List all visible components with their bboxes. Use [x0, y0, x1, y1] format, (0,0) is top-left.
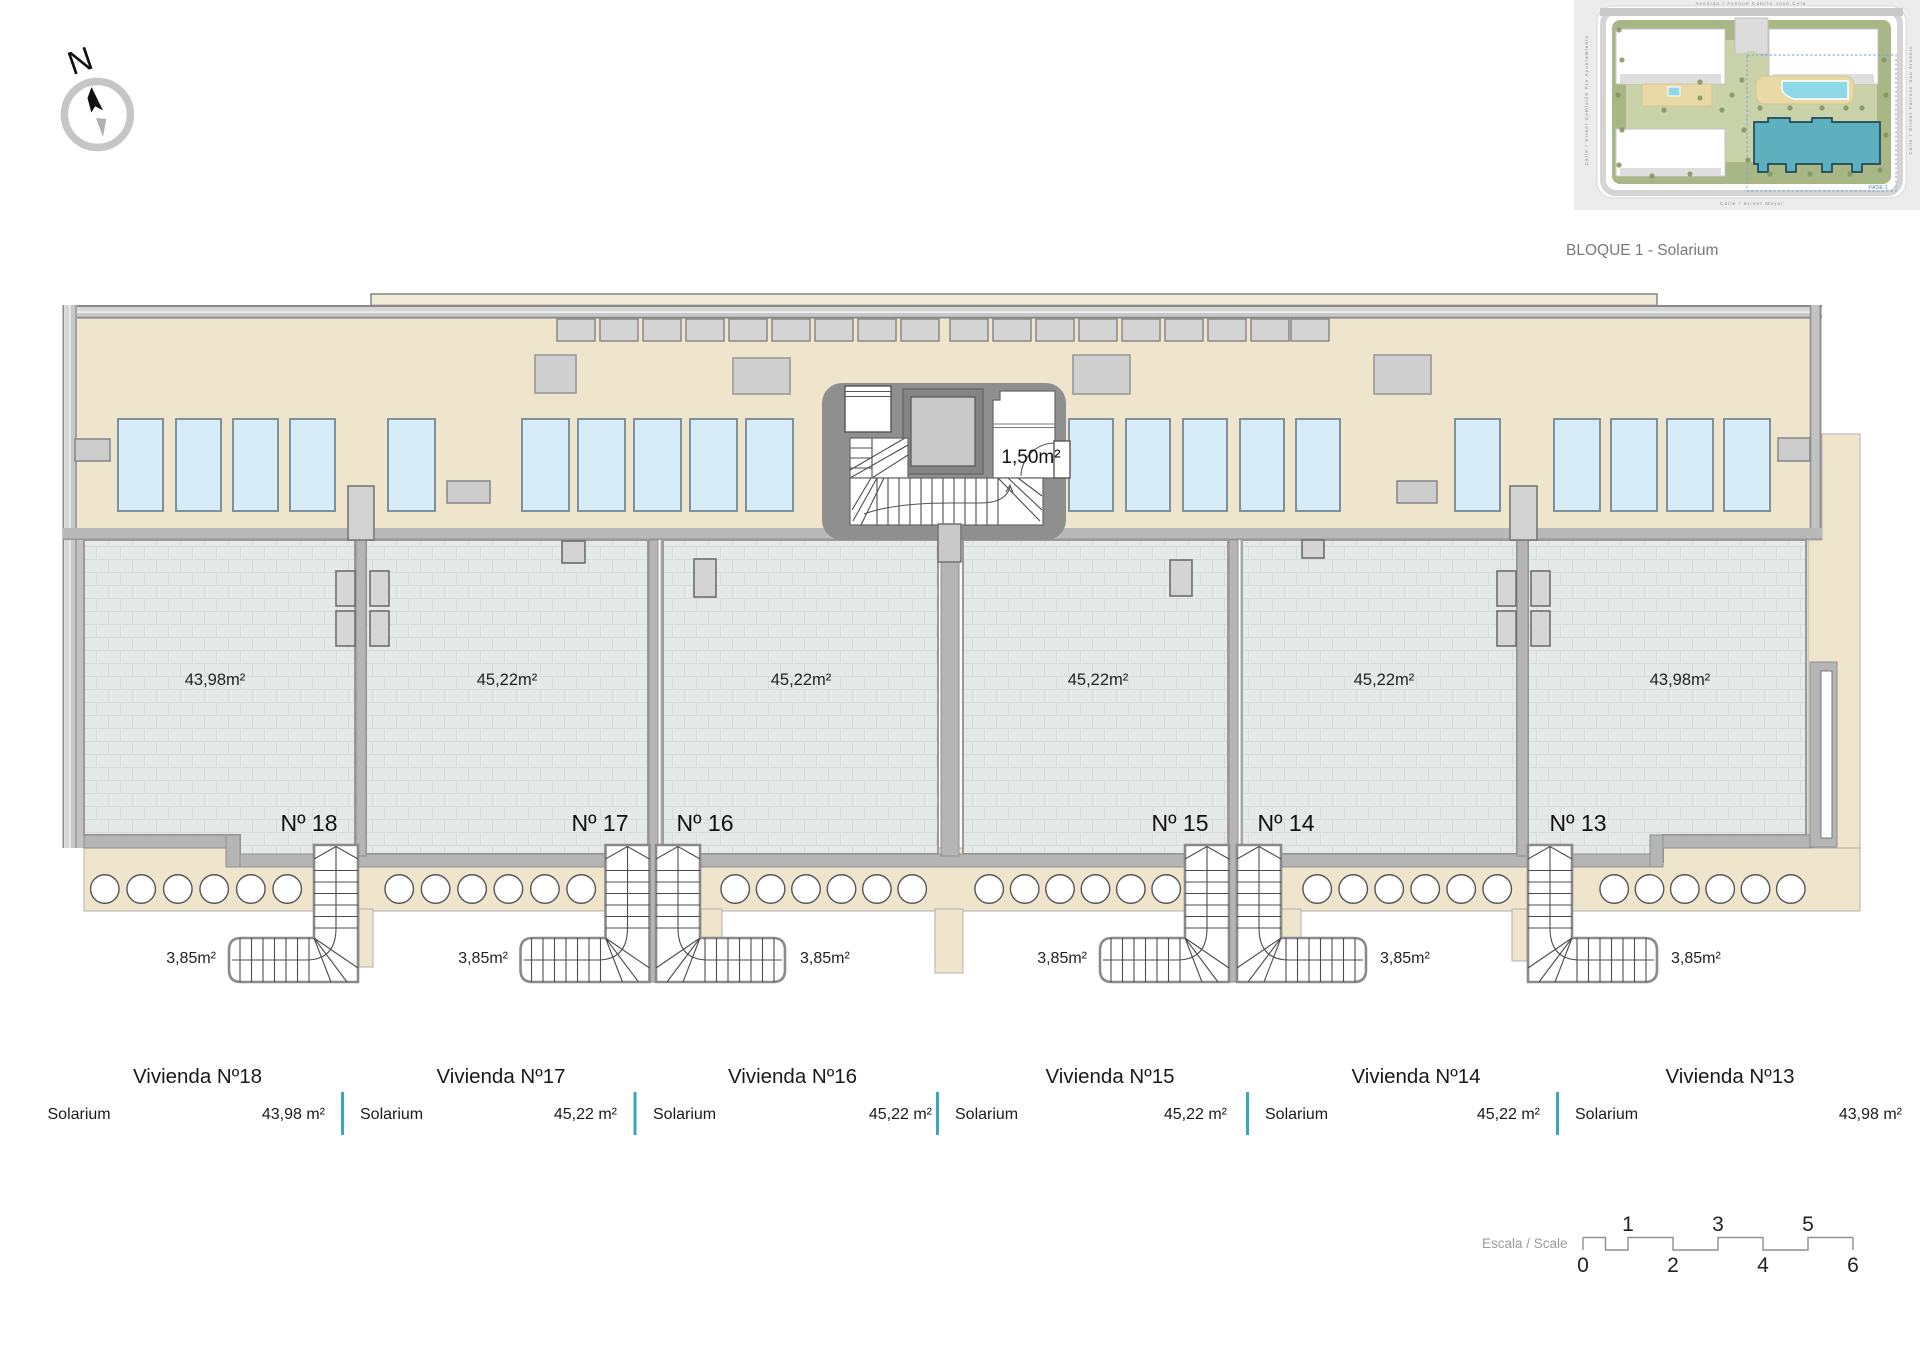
svg-text:Calle / Street Comisión Pro Ay: Calle / Street Comisión Pro Ayuntamiento [1584, 35, 1589, 166]
svg-text:3,85m²: 3,85m² [1671, 950, 1721, 967]
svg-text:3,85m²: 3,85m² [458, 950, 508, 967]
svg-text:45,22m²: 45,22m² [771, 671, 832, 689]
svg-text:3,85m²: 3,85m² [166, 950, 216, 967]
svg-text:Calle / Street Mayor: Calle / Street Mayor [1720, 201, 1784, 206]
svg-text:Nº 18: Nº 18 [281, 810, 338, 836]
svg-text:45,22 m²: 45,22 m² [1164, 1106, 1228, 1123]
svg-text:45,22 m²: 45,22 m² [554, 1106, 618, 1123]
svg-text:Vivienda Nº18: Vivienda Nº18 [133, 1065, 262, 1088]
svg-text:Vivienda Nº15: Vivienda Nº15 [1045, 1065, 1174, 1088]
svg-text:Vivienda Nº14: Vivienda Nº14 [1351, 1065, 1480, 1088]
svg-text:43,98 m²: 43,98 m² [1839, 1106, 1903, 1123]
svg-text:Avenida / Avenue Camilo José C: Avenida / Avenue Camilo José Cela [1696, 1, 1807, 6]
svg-text:Solarium: Solarium [360, 1106, 423, 1123]
svg-text:45,22m²: 45,22m² [477, 671, 538, 689]
svg-text:3,85m²: 3,85m² [1380, 950, 1430, 967]
svg-text:BLOQUE 1 - Solarium: BLOQUE 1 - Solarium [1566, 242, 1718, 259]
svg-text:1,50m²: 1,50m² [1001, 447, 1060, 468]
svg-text:Escala / Scale: Escala / Scale [1482, 1236, 1568, 1251]
svg-text:4: 4 [1757, 1254, 1769, 1277]
svg-text:43,98m²: 43,98m² [1650, 671, 1711, 689]
svg-text:2: 2 [1667, 1254, 1679, 1277]
svg-text:Nº 14: Nº 14 [1258, 810, 1315, 836]
svg-text:45,22 m²: 45,22 m² [869, 1106, 933, 1123]
svg-text:Calle / Street Párroco San Ars: Calle / Street Párroco San Arsenio [1908, 45, 1913, 154]
svg-text:Solarium: Solarium [48, 1106, 111, 1123]
svg-text:5: 5 [1802, 1213, 1814, 1236]
svg-text:Vivienda Nº16: Vivienda Nº16 [728, 1065, 857, 1088]
svg-text:Vivienda Nº13: Vivienda Nº13 [1665, 1065, 1794, 1088]
svg-text:Nº 17: Nº 17 [572, 810, 629, 836]
svg-text:3,85m²: 3,85m² [800, 950, 850, 967]
svg-text:Solarium: Solarium [653, 1106, 716, 1123]
svg-text:45,22 m²: 45,22 m² [1477, 1106, 1541, 1123]
svg-text:43,98m²: 43,98m² [185, 671, 246, 689]
svg-text:43,98 m²: 43,98 m² [262, 1106, 326, 1123]
svg-text:0: 0 [1577, 1254, 1589, 1277]
svg-text:45,22m²: 45,22m² [1354, 671, 1415, 689]
svg-text:Solarium: Solarium [955, 1106, 1018, 1123]
svg-text:Nº 13: Nº 13 [1550, 810, 1607, 836]
svg-text:3: 3 [1712, 1213, 1724, 1236]
svg-text:Nº 15: Nº 15 [1152, 810, 1209, 836]
svg-text:Solarium: Solarium [1575, 1106, 1638, 1123]
svg-text:3,85m²: 3,85m² [1037, 950, 1087, 967]
svg-text:1: 1 [1622, 1213, 1634, 1236]
svg-text:45,22m²: 45,22m² [1068, 671, 1129, 689]
svg-text:Nº 16: Nº 16 [677, 810, 734, 836]
svg-text:6: 6 [1847, 1254, 1859, 1277]
svg-text:Vivienda Nº17: Vivienda Nº17 [436, 1065, 565, 1088]
svg-text:Solarium: Solarium [1265, 1106, 1328, 1123]
svg-text:FASE 1: FASE 1 [1869, 185, 1888, 191]
